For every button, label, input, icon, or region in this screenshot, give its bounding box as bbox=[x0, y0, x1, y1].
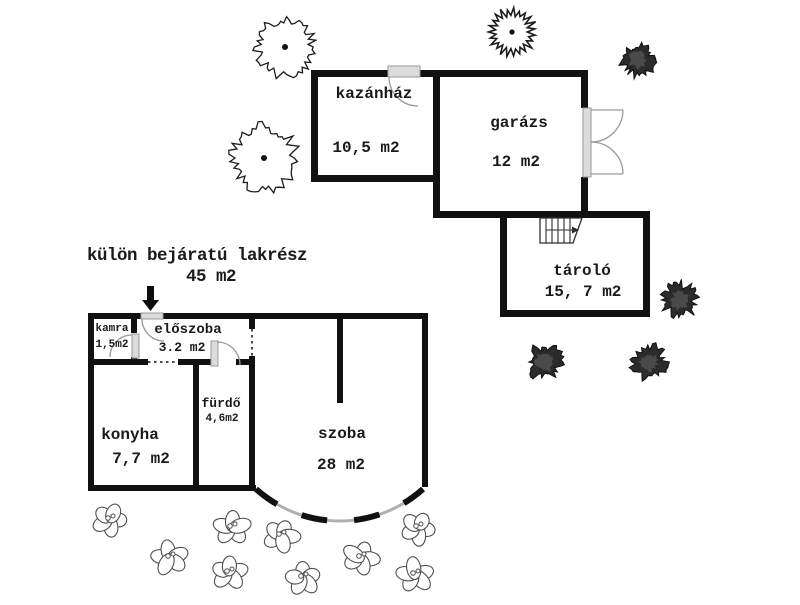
room-label-szoba: szoba bbox=[318, 425, 366, 443]
stairs-icon bbox=[540, 218, 582, 243]
shrub-icon bbox=[660, 279, 699, 318]
room-area-furdo: 4,6m2 bbox=[205, 413, 238, 425]
tree-icon bbox=[253, 17, 316, 79]
furdo-door bbox=[211, 341, 240, 366]
flower-icon bbox=[395, 556, 436, 594]
room-area-konyha: 7,7 m2 bbox=[112, 450, 170, 468]
plan-title-area: 45 m2 bbox=[186, 267, 236, 287]
garage-double-door bbox=[583, 108, 623, 177]
room-label-kamra: kamra bbox=[95, 323, 128, 335]
room-label-konyha: konyha bbox=[101, 426, 159, 444]
room-area-kazanhaz: 10,5 m2 bbox=[332, 139, 399, 157]
flower-icon bbox=[150, 539, 191, 578]
room-area-eloszoba: 3.2 m2 bbox=[159, 340, 206, 355]
room-area-tarolo: 15, 7 m2 bbox=[545, 283, 622, 301]
flower-icon bbox=[262, 519, 302, 555]
flower-icon bbox=[90, 502, 126, 538]
room-label-furdo: fürdő bbox=[201, 396, 240, 411]
flower-icon bbox=[210, 556, 249, 592]
room-area-garazs: 12 m2 bbox=[492, 153, 540, 171]
shrub-icon bbox=[529, 345, 565, 379]
flower-icon bbox=[341, 540, 381, 576]
tree-icon bbox=[229, 121, 299, 192]
flower-icon bbox=[285, 561, 322, 596]
spiky-tree-icon bbox=[489, 8, 536, 57]
bay-window bbox=[256, 489, 423, 521]
room-label-tarolo: tároló bbox=[553, 262, 611, 280]
room-area-szoba: 28 m2 bbox=[317, 456, 365, 474]
room-label-eloszoba: előszoba bbox=[154, 322, 222, 338]
floorplan-drawing: külön bejáratú lakrész 45 m2 kazánház 10… bbox=[0, 0, 800, 605]
room-label-garazs: garázs bbox=[490, 114, 548, 132]
flower-icon bbox=[211, 510, 253, 546]
room-label-kazanhaz: kazánház bbox=[336, 85, 413, 103]
room-area-kamra: 1,5m2 bbox=[95, 339, 128, 351]
plan-title: külön bejáratú lakrész bbox=[87, 246, 307, 266]
floorplan-page: külön bejáratú lakrész 45 m2 kazánház 10… bbox=[0, 0, 800, 605]
entrance-arrow-icon bbox=[142, 286, 159, 311]
flower-icon bbox=[399, 511, 436, 547]
shrub-icon bbox=[629, 343, 669, 382]
shrub-icon bbox=[619, 42, 657, 79]
